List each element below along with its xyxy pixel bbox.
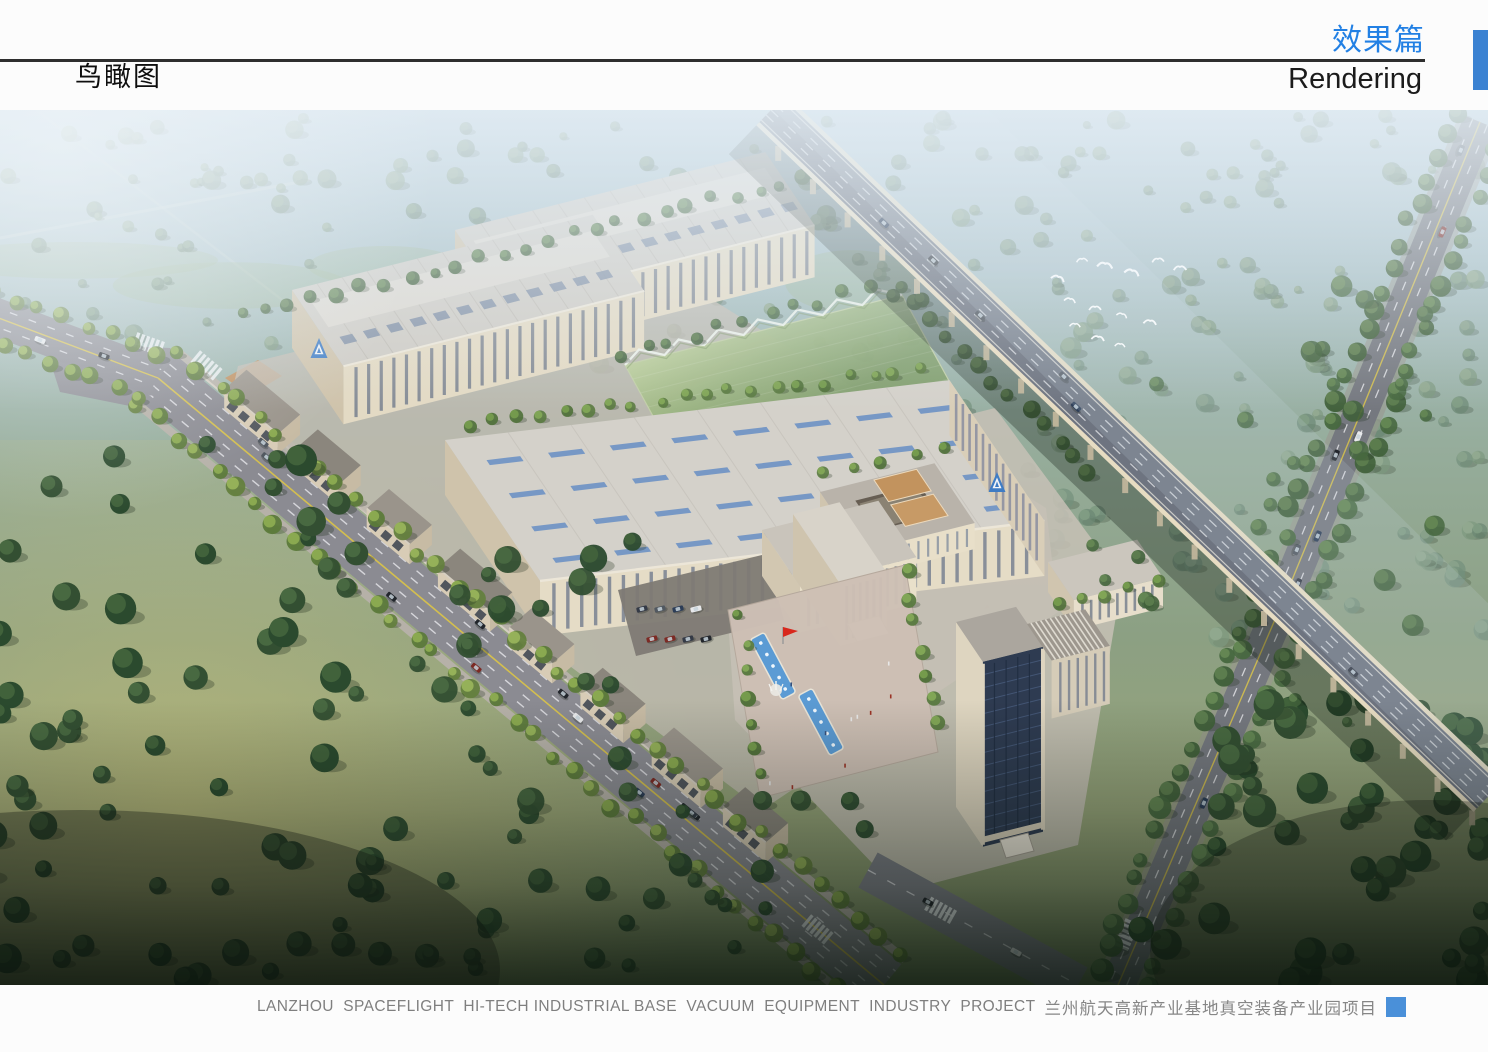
page-title: 鸟瞰图 bbox=[75, 61, 162, 93]
project-caption-en: LANZHOU SPACEFLIGHT HI-TECH INDUSTRIAL B… bbox=[257, 998, 1035, 1016]
aerial-rendering-image bbox=[0, 110, 1488, 985]
section-title-zh: 效果篇 bbox=[1332, 24, 1425, 58]
project-caption-zh: 兰州航天高新产业基地真空装备产业园项目 bbox=[1045, 995, 1378, 1019]
header-rule bbox=[0, 59, 1425, 62]
section-title-en: Rendering bbox=[1288, 63, 1422, 95]
page-footer: LANZHOU SPACEFLIGHT HI-TECH INDUSTRIAL B… bbox=[257, 995, 1406, 1019]
footer-accent-square bbox=[1386, 997, 1406, 1017]
presentation-page: 效果篇 Rendering 鸟瞰图 LANZHOU SPACEFLIGHT HI… bbox=[0, 0, 1488, 1052]
birdseye-rendering-scene bbox=[0, 110, 1488, 985]
header-accent-bar bbox=[1473, 30, 1488, 90]
